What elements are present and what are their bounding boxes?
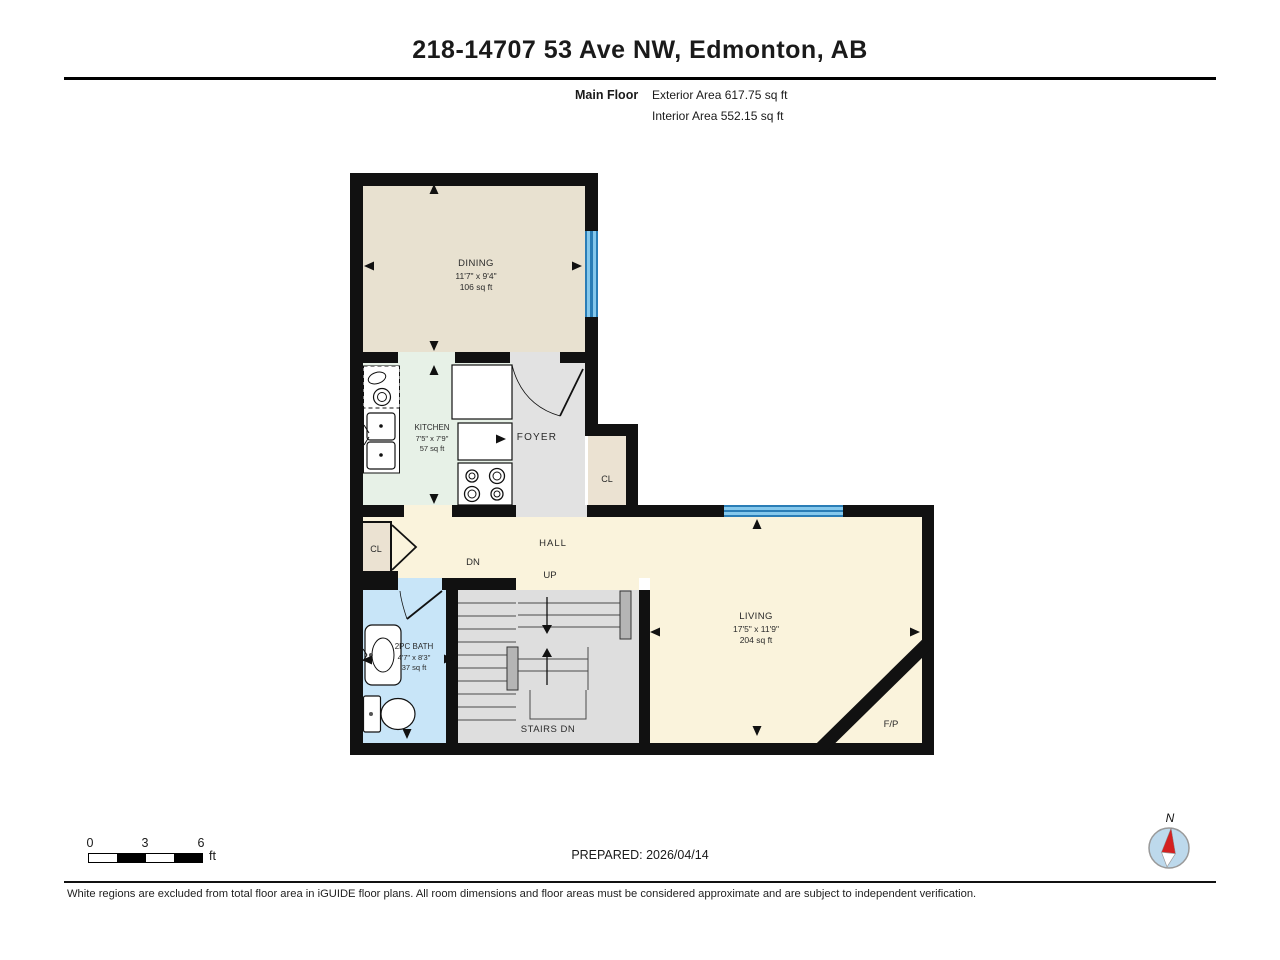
exterior-area: Exterior Area 617.75 sq ft bbox=[652, 88, 787, 102]
prepared-date: PREPARED: 2026/04/14 bbox=[571, 848, 708, 862]
room-area: 57 sq ft bbox=[414, 444, 449, 454]
stairs-up-arrow-icon bbox=[542, 648, 552, 685]
scale-tick: 3 bbox=[142, 836, 149, 850]
hall-label: HALL bbox=[539, 538, 567, 551]
stove-icon bbox=[458, 463, 512, 505]
title-divider bbox=[64, 77, 1216, 80]
dimension-arrows bbox=[362, 184, 920, 739]
stairs-down-label: DN bbox=[466, 557, 480, 570]
entry-door-icon bbox=[512, 365, 583, 416]
fireplace-label: F/P bbox=[884, 719, 899, 732]
scale-tick: 0 bbox=[87, 836, 94, 850]
compass-icon: N bbox=[1140, 810, 1198, 874]
stairs-up-label: UP bbox=[543, 570, 556, 583]
foyer-label: FOYER bbox=[517, 431, 557, 445]
room-dims: 17'5" x 11'9" bbox=[733, 624, 779, 635]
room-area: 204 sq ft bbox=[733, 635, 779, 646]
room-dims: 7'5" x 7'9" bbox=[414, 434, 449, 444]
footer-divider bbox=[64, 881, 1216, 883]
kitchen-counter2-icon bbox=[458, 423, 512, 460]
kitchen-fridge-icon bbox=[452, 365, 512, 419]
compass-north-label: N bbox=[1166, 811, 1175, 825]
floor-name: Main Floor bbox=[575, 88, 638, 102]
scale-segment bbox=[89, 854, 117, 862]
scale-tick: 6 bbox=[198, 836, 205, 850]
room-dims: 4'7" x 8'3" bbox=[395, 653, 434, 663]
scale-segment bbox=[174, 854, 202, 862]
foyer-closet-label: CL bbox=[601, 473, 613, 485]
room-dims: 11'7" x 9'4" bbox=[455, 271, 496, 282]
room-name: DINING bbox=[455, 258, 496, 271]
scale-segment bbox=[146, 854, 174, 862]
closet-bifold-door-icon bbox=[392, 525, 416, 570]
scale-segment bbox=[117, 854, 145, 862]
fixtures-layer bbox=[350, 173, 935, 755]
dining-label: DINING 11'7" x 9'4" 106 sq ft bbox=[455, 258, 496, 294]
room-area: 37 sq ft bbox=[395, 663, 434, 673]
scale-bar-segments bbox=[88, 853, 203, 863]
kitchen-label: KITCHEN 7'5" x 7'9" 57 sq ft bbox=[414, 423, 449, 454]
hall-closet-label: CL bbox=[370, 543, 382, 555]
fireplace-wall bbox=[817, 642, 929, 752]
room-name: 2PC BATH bbox=[395, 642, 434, 653]
room-name: LIVING bbox=[733, 611, 779, 624]
interior-area: Interior Area 552.15 sq ft bbox=[652, 109, 783, 123]
disclaimer-text: White regions are excluded from total fl… bbox=[67, 888, 976, 900]
bath-label: 2PC BATH 4'7" x 8'3" 37 sq ft bbox=[395, 642, 434, 673]
toilet-icon bbox=[364, 696, 416, 732]
room-area: 106 sq ft bbox=[455, 282, 496, 293]
floor-plan: DINING 11'7" x 9'4" 106 sq ft KITCHEN 7'… bbox=[350, 173, 935, 755]
stairs-dn-label: STAIRS DN bbox=[521, 724, 575, 737]
room-name: KITCHEN bbox=[414, 423, 449, 434]
scale-unit: ft bbox=[209, 849, 216, 863]
page-title: 218-14707 53 Ave NW, Edmonton, AB bbox=[0, 36, 1280, 65]
scale-bar: 0 3 6 ft bbox=[88, 836, 238, 866]
bath-door-icon bbox=[400, 591, 442, 619]
living-label: LIVING 17'5" x 11'9" 204 sq ft bbox=[733, 611, 779, 647]
